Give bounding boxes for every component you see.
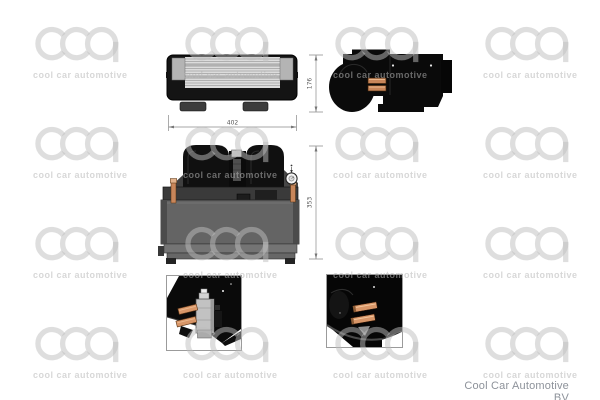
cca-logo-icon	[333, 124, 421, 165]
dimension-side-height-label: 176	[307, 78, 314, 90]
copper-pipe-left	[170, 179, 176, 204]
watermark-caption: cool car automotive	[333, 370, 421, 380]
watermark: cool car automotive	[33, 24, 121, 80]
watermark: cool car automotive	[33, 124, 121, 180]
cca-logo-icon	[33, 224, 121, 265]
dimension-front-height-label: 353	[307, 197, 314, 209]
watermark: cool car automotive	[333, 224, 421, 280]
detail-photo-left	[166, 275, 242, 351]
watermark: cool car automotive	[33, 224, 121, 280]
blower-housing-left	[183, 145, 229, 187]
watermark-caption: cool car automotive	[483, 170, 571, 180]
mounting-foot	[180, 102, 206, 111]
unit-body	[161, 200, 299, 244]
watermark: cool car automotive	[333, 124, 421, 180]
pipes-closeup-image	[327, 275, 402, 347]
watermark-caption: cool car automotive	[33, 370, 121, 380]
blower-housing-right	[246, 145, 284, 187]
cca-logo-icon	[33, 124, 121, 165]
watermark: cool car automotive	[483, 224, 571, 280]
end-cap-right	[280, 58, 293, 80]
watermark-caption: cool car automotive	[33, 270, 121, 280]
watermark-caption: cool car automotive	[33, 70, 121, 80]
watermark: cool car automotive	[483, 324, 571, 380]
watermark-caption: cool car automotive	[483, 270, 571, 280]
watermark-caption: cool car automotive	[483, 70, 571, 80]
cca-logo-icon	[483, 224, 571, 265]
mounting-foot	[243, 102, 268, 111]
watermark: cool car automotive	[483, 124, 571, 180]
dimension-width: 402	[165, 115, 301, 135]
sight-glass-icon	[286, 165, 297, 185]
watermark-caption: cool car automotive	[483, 370, 571, 380]
dimension-front-height: 353	[303, 141, 327, 265]
cca-logo-icon	[483, 24, 571, 65]
watermark-caption: cool car automotive	[33, 170, 121, 180]
watermark-caption: cool car automotive	[333, 170, 421, 180]
front-view-drawing	[158, 142, 306, 268]
dimension-side-height: 176	[304, 50, 328, 118]
cca-logo-icon	[483, 124, 571, 165]
watermark-caption: cool car automotive	[183, 370, 271, 380]
side-view-drawing	[327, 46, 455, 116]
product-image-canvas: cool car automotive cool car automotive …	[0, 0, 600, 400]
watermark: cool car automotive	[33, 324, 121, 380]
cca-logo-icon	[33, 324, 121, 365]
cca-logo-icon	[333, 224, 421, 265]
end-cap-left	[172, 58, 185, 80]
footer-brand: Cool Car Automotive BV	[449, 380, 569, 400]
detail-photo-right	[326, 274, 403, 348]
top-view-drawing	[166, 53, 298, 115]
valve-closeup-image	[167, 276, 241, 350]
cca-logo-icon	[483, 324, 571, 365]
cca-logo-icon	[33, 24, 121, 65]
watermark: cool car automotive	[483, 24, 571, 80]
dimension-width-label: 402	[227, 120, 239, 127]
